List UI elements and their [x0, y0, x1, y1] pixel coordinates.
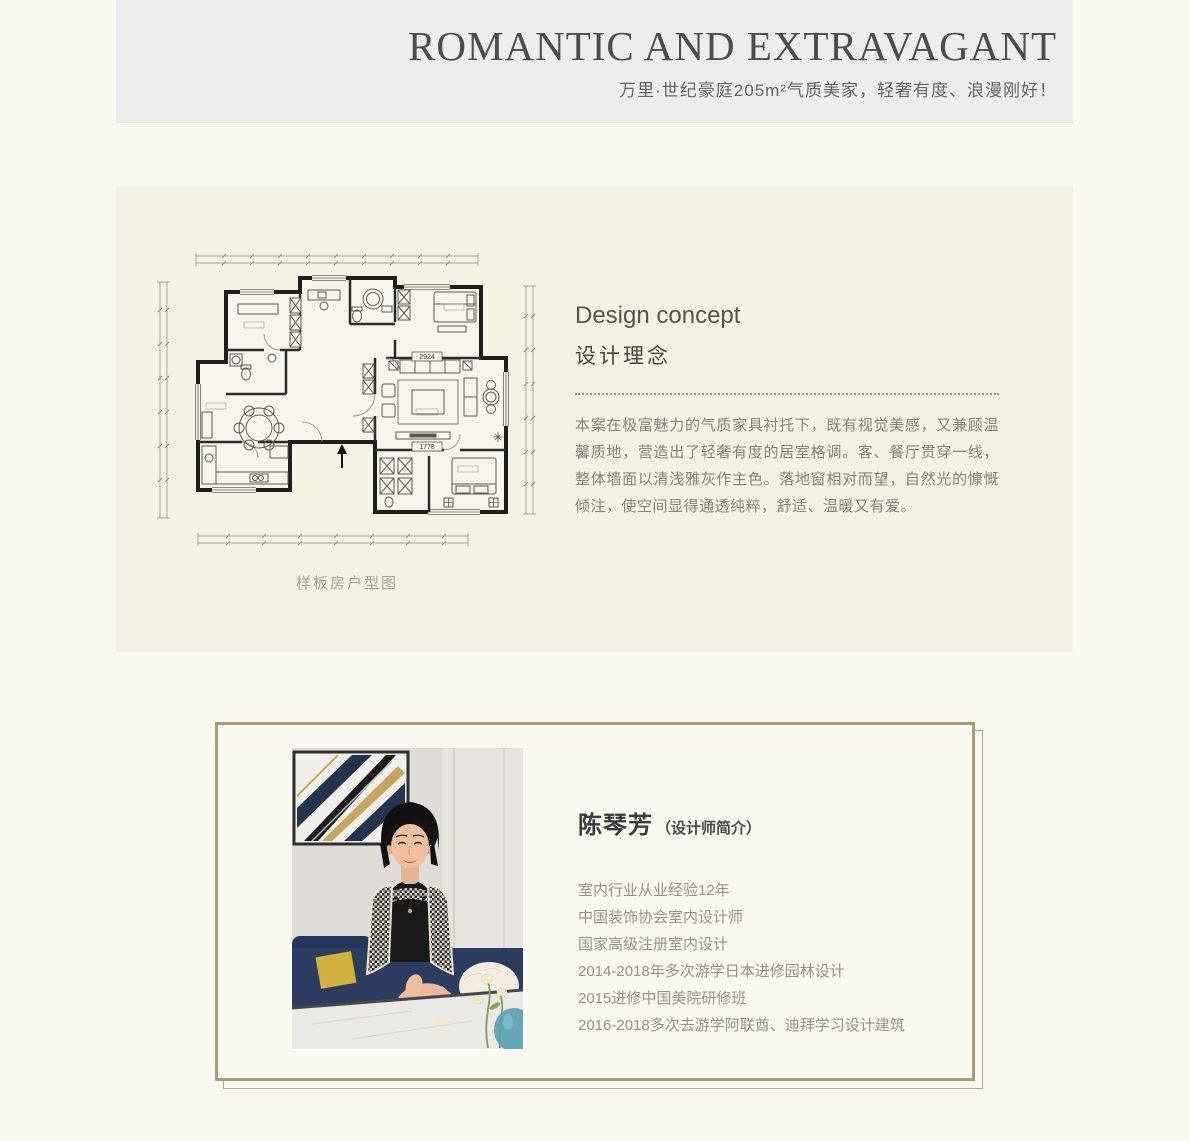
designer-name-suffix: （设计师简介） — [656, 820, 761, 837]
concept-text-block: Design concept 设计理念 本案在极富魅力的气质家具衬托下，既有视觉… — [575, 302, 999, 520]
designer-portrait-image — [292, 748, 523, 1049]
plan-label-floor: 1778 — [419, 444, 435, 451]
concept-heading-zh: 设计理念 — [575, 340, 999, 370]
credential-item: 国家高级注册室内设计 — [578, 931, 950, 958]
concept-body-text: 本案在极富魅力的气质家具衬托下，既有视觉美感，又兼顾温馨质地，营造出了轻奢有度的… — [575, 412, 999, 520]
designer-card: 陈琴芳（设计师简介） 室内行业从业经验12年 中国装饰协会室内设计师 国家高级注… — [215, 722, 975, 1081]
credential-item: 2015进修中国美院研修班 — [578, 985, 950, 1012]
design-concept-section: 2924 1778 样板房户型图 Design concept 设计理念 本案在… — [116, 186, 1073, 652]
credential-item: 2016-2018多次去游学阿联酋、迪拜学习设计建筑 — [578, 1012, 950, 1039]
floorplan-caption: 样板房户型图 — [146, 572, 548, 593]
dotted-divider — [575, 393, 999, 395]
designer-name: 陈琴芳 — [578, 812, 653, 839]
designer-info-block: 陈琴芳（设计师简介） 室内行业从业经验12年 中国装饰协会室内设计师 国家高级注… — [578, 805, 950, 1039]
page-title: ROMANTIC AND EXTRAVAGANT — [116, 25, 1057, 68]
entry-arrow — [337, 444, 347, 468]
header-banner: ROMANTIC AND EXTRAVAGANT 万里·世纪豪庭205m²气质美… — [116, 0, 1073, 123]
designer-photo — [292, 748, 523, 1049]
page: ROMANTIC AND EXTRAVAGANT 万里·世纪豪庭205m²气质美… — [0, 0, 1190, 1141]
credential-item: 2014-2018年多次游学日本进修园林设计 — [578, 958, 950, 985]
plan-label-sofa: 2924 — [419, 354, 435, 361]
concept-heading-en: Design concept — [575, 302, 999, 330]
designer-name-row: 陈琴芳（设计师简介） — [578, 805, 950, 840]
credential-item: 中国装饰协会室内设计师 — [578, 904, 950, 931]
credential-item: 室内行业从业经验12年 — [578, 877, 950, 904]
floorplan-figure: 2924 1778 样板房户型图 — [146, 246, 548, 593]
designer-credentials-list: 室内行业从业经验12年 中国装饰协会室内设计师 国家高级注册室内设计 2014-… — [578, 877, 950, 1039]
floorplan-image: 2924 1778 — [146, 246, 548, 564]
page-subtitle: 万里·世纪豪庭205m²气质美家，轻奢有度、浪漫刚好！ — [116, 76, 1057, 101]
